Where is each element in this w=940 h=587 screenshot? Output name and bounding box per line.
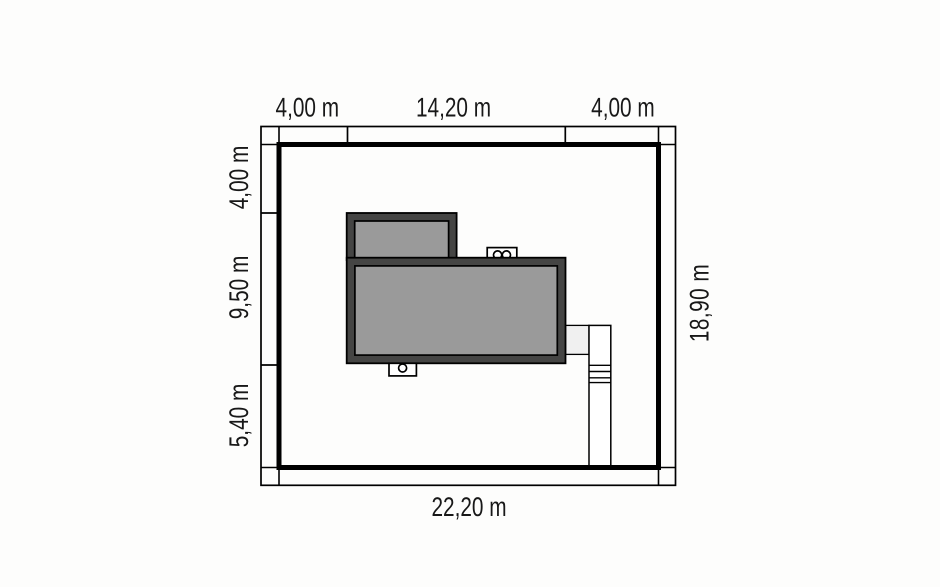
svg-text:4,00 m: 4,00 m	[591, 92, 655, 122]
svg-text:4,00 m: 4,00 m	[276, 92, 340, 122]
svg-text:4,00 m: 4,00 m	[224, 146, 254, 210]
svg-text:9,50 m: 9,50 m	[224, 256, 254, 320]
svg-text:5,40 m: 5,40 m	[224, 384, 254, 448]
svg-text:22,20 m: 22,20 m	[431, 492, 506, 522]
svg-text:14,20 m: 14,20 m	[416, 92, 491, 122]
svg-text:18,90 m: 18,90 m	[685, 264, 715, 342]
